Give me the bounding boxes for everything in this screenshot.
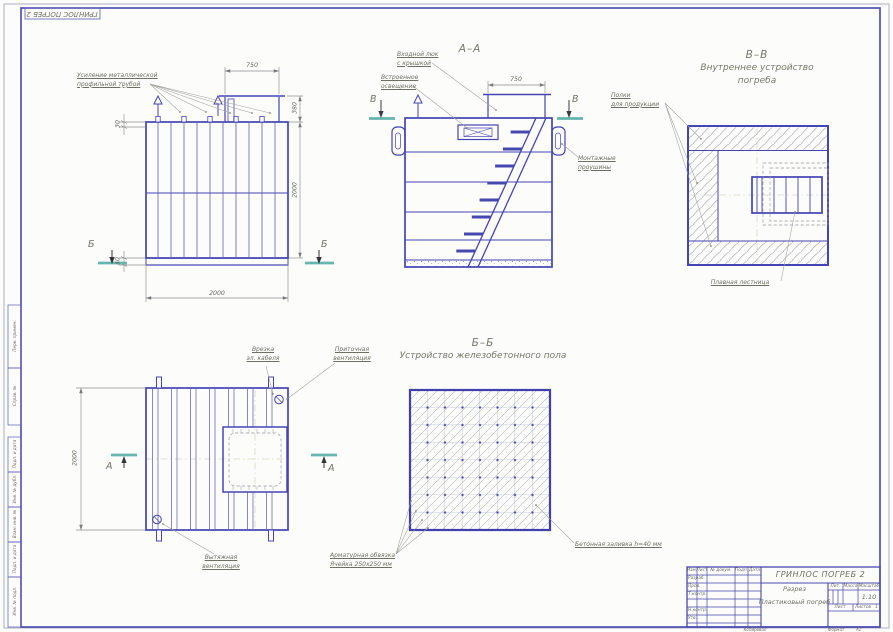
section-letter-v-right: В xyxy=(572,93,579,107)
light-label: Встроенное освещение xyxy=(381,74,418,91)
tb-mass-label: Масса xyxy=(844,585,858,589)
tb-object-name: Пластиковый погреб xyxy=(759,599,831,606)
leader-lines xyxy=(162,363,335,554)
leader-lines xyxy=(150,84,271,114)
tb-row-prov: Пров. xyxy=(688,585,701,589)
tb-row-utv: Утв. xyxy=(688,617,697,621)
vent-pipe xyxy=(414,95,422,118)
dimensions xyxy=(76,388,145,530)
tb-scale-label: Масштаб xyxy=(859,585,879,589)
dim-750-aa: 750 xyxy=(510,76,522,85)
reinforcement-label: Усиление металлической профильной трубой xyxy=(77,72,158,89)
concrete-label: Бетонная заливка h=40 мм xyxy=(575,541,662,550)
tb-sheets-value: 1 xyxy=(875,606,878,610)
dim-40: 40 xyxy=(115,257,124,265)
section-bb-title: Б–Б xyxy=(472,336,495,351)
tb-copied: Копировал xyxy=(744,628,767,632)
exhaust-vent-label: Вытяжная вентиляция xyxy=(202,554,240,571)
section-aa-title: А–А xyxy=(459,42,482,57)
section-vv-view xyxy=(665,103,828,281)
tb-lit-label: Лит. xyxy=(831,585,841,589)
margin-stamp-label: Подп. и дата xyxy=(12,440,16,469)
drawing-geometry xyxy=(0,0,893,632)
tb-format-label: Формат xyxy=(828,628,844,632)
hatch-collar xyxy=(483,95,551,119)
section-letter-a-right: А xyxy=(328,462,335,476)
tb-col-data: Дата xyxy=(749,569,760,573)
hatch-collar xyxy=(219,96,285,122)
plan-view xyxy=(76,363,337,554)
tb-scale-value: 1:10 xyxy=(862,594,877,601)
ribs xyxy=(158,122,275,258)
margin-stamp-label: Взам. инв. № xyxy=(12,510,16,538)
margin-stamp-label: Перв. примен. xyxy=(12,320,16,351)
hatch-label: Входной люк с крышкой xyxy=(397,51,438,68)
section-letter-b-right: Б xyxy=(321,238,328,252)
dim-30: 30 xyxy=(115,120,124,128)
tb-type-name: Разрез xyxy=(783,586,806,593)
section-letter-b-left: Б xyxy=(88,238,95,252)
supply-vent-label: Приточная вентиляция xyxy=(333,346,371,363)
tb-doc-title: ГРИНЛОС ПОГРЕБ 2 xyxy=(776,571,866,579)
dim-2000-plan: 2000 xyxy=(72,450,81,466)
dim-380: 380 xyxy=(292,102,301,114)
section-vv-subtitle: Внутреннее устройство погреба xyxy=(689,62,825,88)
ladder-label: Плавная лестница xyxy=(711,279,770,288)
tb-format-value: А1 xyxy=(856,628,861,632)
dim-2000-bottom: 2000 xyxy=(209,290,225,299)
light-fixture xyxy=(458,125,498,140)
hatch-opening-dashed xyxy=(763,163,828,225)
ladder xyxy=(456,118,546,267)
corner-stamp: ГРИНЛОС ПОГРЕБ 2 xyxy=(26,8,97,18)
section-bb-subtitle: Устройство железобетонного пола xyxy=(400,350,567,363)
section-marks-a xyxy=(111,455,337,468)
tb-row-nkontr: Н.контр. xyxy=(688,609,707,613)
tb-row-tkontr: Т.контр. xyxy=(688,593,707,597)
dim-2000-right: 2000 xyxy=(292,182,301,198)
tb-col-dokum: № докум. xyxy=(710,569,731,573)
tb-sheets-label: Листов xyxy=(855,606,871,610)
lugs-label: Монтажные проушины xyxy=(578,155,616,172)
tb-col-izm: Изм. xyxy=(687,569,697,573)
margin-stamp-label: Подп. и дата xyxy=(12,545,16,574)
margin-stamp-label: Инв. № дубл. xyxy=(12,475,16,504)
cable-label: Врезка эл. кабеля xyxy=(246,346,279,363)
vent-circles xyxy=(153,395,284,524)
section-letter-v-left: В xyxy=(370,93,377,107)
tb-row-razrab: Разраб. xyxy=(688,577,705,581)
section-vv-title: В–В xyxy=(746,48,769,63)
section-aa-view xyxy=(369,63,583,267)
section-marks-v xyxy=(369,100,583,119)
section-bb-view xyxy=(396,390,574,554)
tb-sheet-label: Лист xyxy=(835,606,846,610)
section-letter-a-left: А xyxy=(106,460,113,474)
dim-750: 750 xyxy=(246,62,258,71)
mounting-lugs xyxy=(392,127,565,155)
drawing-sheet: ГРИНЛОС ПОГРЕБ 2 Перв. примен. Справ. № … xyxy=(0,0,893,632)
margin-stamp-label: Инв. № подл. xyxy=(12,587,16,616)
leader-lines xyxy=(413,63,578,157)
tb-col-podp: Подп. xyxy=(735,569,748,573)
sheet-frame xyxy=(4,4,889,628)
section-marks-b xyxy=(98,250,334,264)
margin-stamp-label: Справ. № xyxy=(12,386,16,406)
tb-col-list: Лист xyxy=(697,569,708,573)
shelves-label: Полки для продукции xyxy=(611,92,659,109)
rebar-label: Арматурная обвязка Ячейка 250х250 мм xyxy=(330,552,395,569)
